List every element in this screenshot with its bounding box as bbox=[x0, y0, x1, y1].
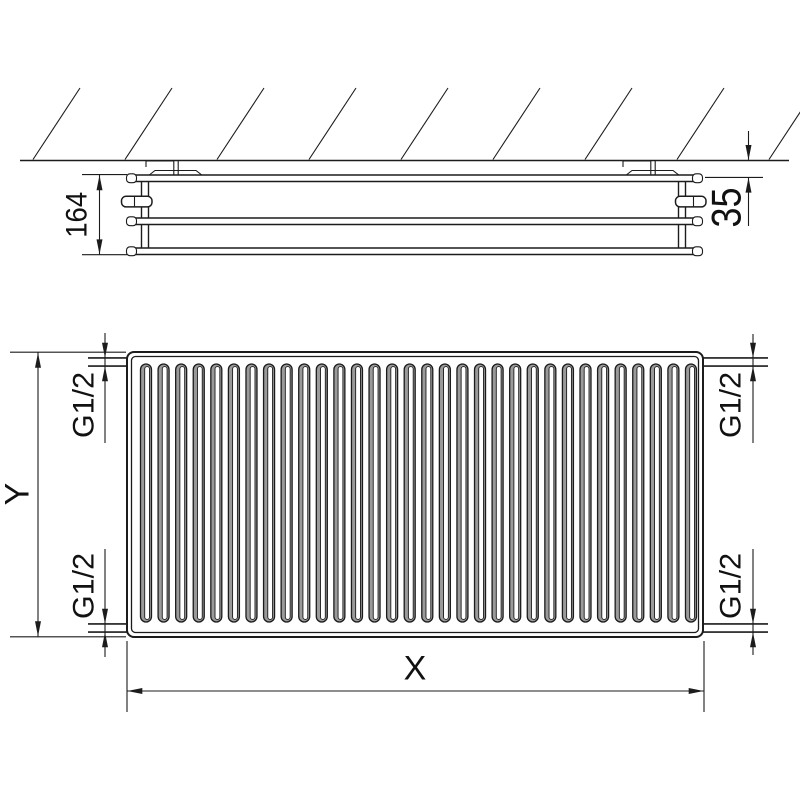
fin-highlight bbox=[584, 367, 589, 620]
panel-middle-endcap bbox=[127, 217, 137, 226]
fin-highlight bbox=[619, 367, 624, 620]
thread-size-label: G1/2 bbox=[68, 372, 101, 438]
fin-highlight bbox=[690, 367, 695, 620]
dimension-g12-top-left: G1/2 bbox=[68, 333, 109, 443]
fin-highlight bbox=[672, 367, 677, 620]
arrowhead-down bbox=[746, 145, 752, 160]
arrowhead-down bbox=[97, 239, 103, 254]
dimension-depth-164: 164 bbox=[61, 175, 128, 255]
height-dimension-label: Y bbox=[0, 483, 37, 506]
hatch-line bbox=[677, 88, 724, 160]
hatch-line bbox=[217, 88, 264, 160]
fin-highlight bbox=[531, 367, 536, 620]
arrowhead-down bbox=[102, 609, 108, 624]
front-view: G1/2 G1/2 G1/2 G1/2 bbox=[0, 333, 768, 712]
top-view: 164 35 bbox=[20, 88, 800, 256]
hatch-line bbox=[493, 88, 540, 160]
fin-highlight bbox=[356, 367, 361, 620]
arrowhead-down bbox=[750, 343, 756, 358]
panel-back bbox=[128, 175, 701, 182]
valve-stub-left bbox=[122, 196, 153, 207]
panel-back-endcap bbox=[693, 174, 703, 183]
fin-highlight bbox=[426, 367, 431, 620]
fin-highlight bbox=[338, 367, 343, 620]
hatch-line bbox=[33, 88, 80, 160]
wall-hatching bbox=[33, 88, 800, 160]
radiator-panels bbox=[127, 174, 703, 256]
valve-stub-right bbox=[676, 196, 707, 207]
dimension-g12-bottom-left: G1/2 bbox=[68, 549, 109, 657]
dimension-height-y: Y bbox=[0, 352, 126, 637]
fin-highlight bbox=[408, 367, 413, 620]
panel-front-endcap bbox=[693, 247, 703, 256]
fin-highlight bbox=[567, 367, 572, 620]
fin-highlight bbox=[514, 367, 519, 620]
arrowhead-down bbox=[750, 609, 756, 624]
fin-highlight bbox=[233, 367, 238, 620]
fin-highlight bbox=[444, 367, 449, 620]
fin-highlight bbox=[391, 367, 396, 620]
panel-front bbox=[128, 248, 701, 255]
arrowhead-up bbox=[35, 353, 41, 368]
panel-front-endcap bbox=[127, 247, 137, 256]
fin-highlight bbox=[321, 367, 326, 620]
hatch-line bbox=[309, 88, 356, 160]
hatch-line bbox=[585, 88, 632, 160]
arrowhead-up bbox=[102, 366, 108, 381]
panel-back-endcap bbox=[127, 174, 137, 183]
fin-highlight bbox=[461, 367, 466, 620]
panel-middle bbox=[128, 218, 701, 225]
fin-highlight bbox=[655, 367, 660, 620]
thread-size-label: G1/2 bbox=[68, 553, 101, 619]
wall-bracket-right bbox=[623, 161, 680, 176]
drawing-svg: 164 35 bbox=[0, 0, 800, 800]
arrowhead-down bbox=[102, 343, 108, 358]
fin-highlight bbox=[162, 367, 167, 620]
arrowhead-right bbox=[689, 688, 704, 694]
fin-highlight bbox=[479, 367, 484, 620]
panel-middle-endcap bbox=[693, 217, 703, 226]
fin-highlight bbox=[637, 367, 642, 620]
hatch-line bbox=[401, 88, 448, 160]
hatch-line bbox=[125, 88, 172, 160]
fin-highlight bbox=[145, 367, 150, 620]
fin-highlight bbox=[602, 367, 607, 620]
dimension-width-x: X bbox=[127, 641, 704, 712]
arrowhead-up bbox=[102, 632, 108, 647]
arrowhead-up bbox=[750, 366, 756, 381]
hatch-line bbox=[769, 88, 800, 160]
arrowhead-up bbox=[750, 632, 756, 647]
depth-dimension-label: 164 bbox=[61, 192, 94, 238]
fin-highlight bbox=[268, 367, 273, 620]
fin-highlight bbox=[180, 367, 185, 620]
wall-bracket-left bbox=[146, 161, 203, 176]
wall-gap-dimension-label: 35 bbox=[703, 188, 750, 228]
fin-highlight bbox=[285, 367, 290, 620]
dimension-wall-gap-35: 35 bbox=[703, 131, 764, 228]
fin-highlight bbox=[215, 367, 220, 620]
radiator-technical-drawing: 164 35 bbox=[0, 0, 800, 800]
fin-highlight bbox=[373, 367, 378, 620]
arrowhead-up bbox=[97, 175, 103, 190]
top-view-stubs bbox=[122, 196, 707, 207]
thread-size-label: G1/2 bbox=[715, 553, 748, 619]
fin-highlight bbox=[303, 367, 308, 620]
arrowhead-left bbox=[127, 688, 142, 694]
panel-connectors bbox=[142, 181, 686, 249]
fin-highlight bbox=[549, 367, 554, 620]
dimension-g12-top-right: G1/2 bbox=[715, 334, 757, 443]
arrowhead-down bbox=[35, 621, 41, 636]
fin-highlight bbox=[250, 367, 255, 620]
fin-highlight bbox=[496, 367, 501, 620]
dimension-g12-bottom-right: G1/2 bbox=[715, 549, 757, 655]
fin-highlight bbox=[197, 367, 202, 620]
width-dimension-label: X bbox=[404, 650, 427, 688]
thread-size-label: G1/2 bbox=[715, 372, 748, 438]
